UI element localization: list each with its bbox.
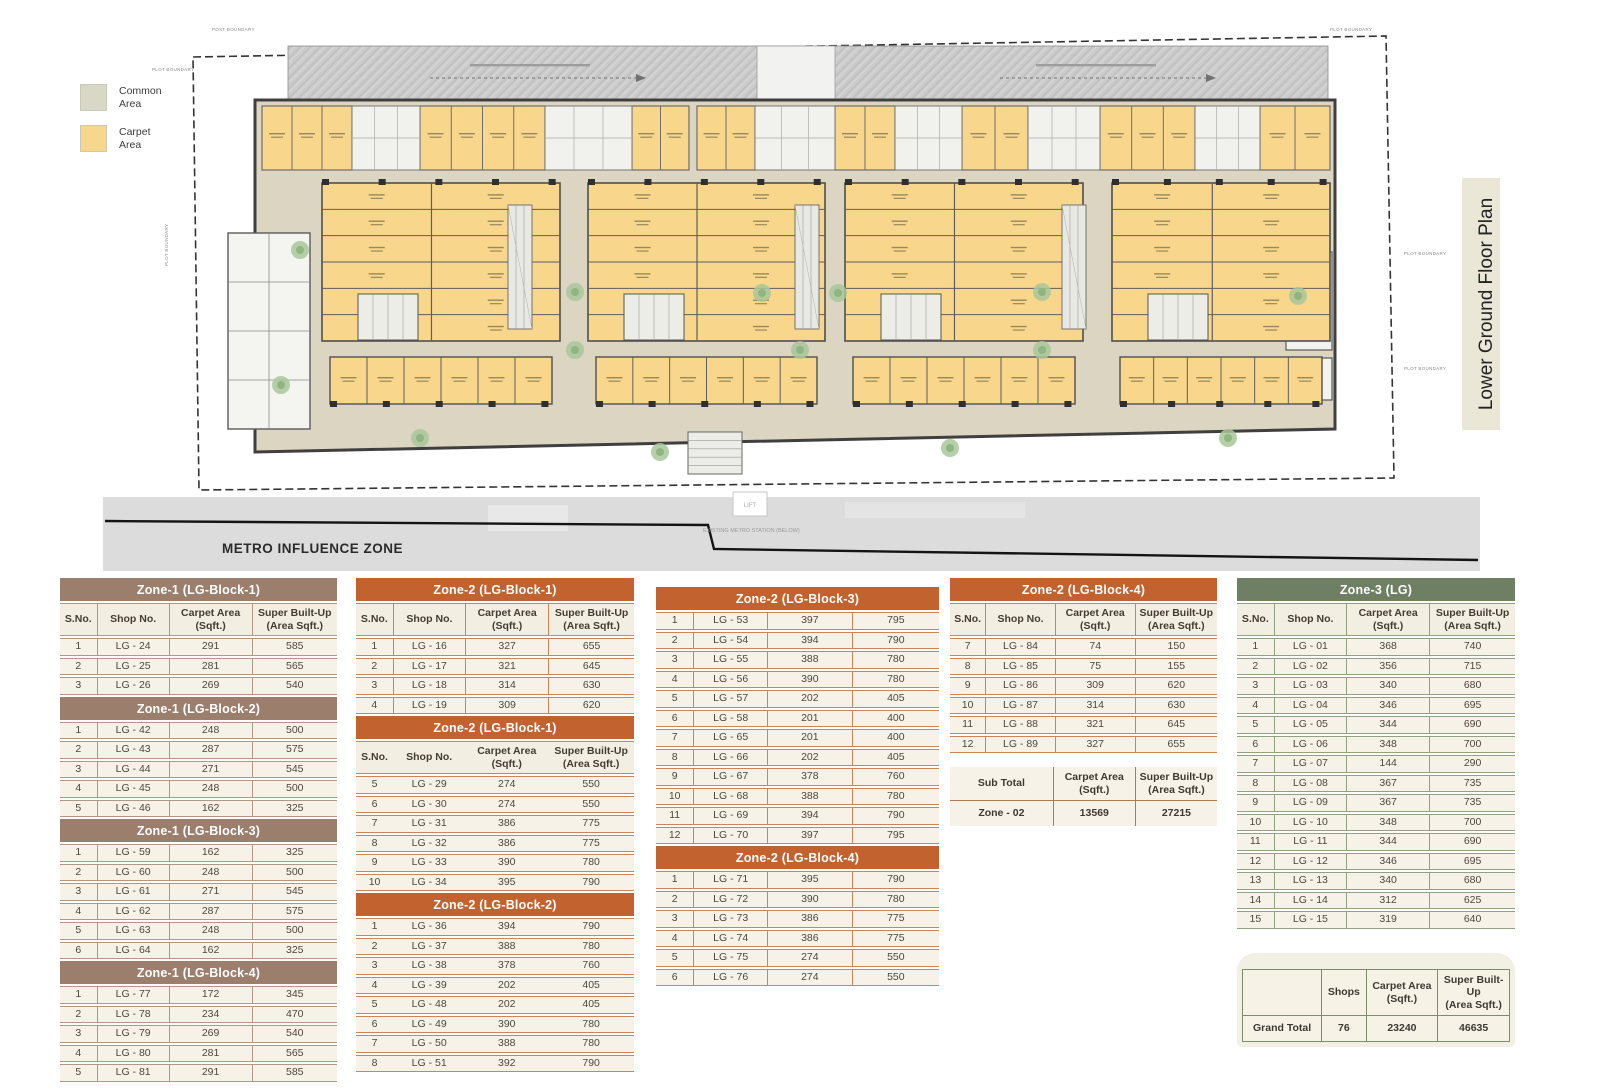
shop-label-mark xyxy=(1129,377,1145,378)
boundary-label: PLOT BOUNDARY xyxy=(1404,366,1446,371)
metro-structure xyxy=(488,505,568,531)
table-cell: 388 xyxy=(767,651,852,669)
table-cell: 327 xyxy=(1055,736,1135,754)
table-cell: 395 xyxy=(465,874,548,892)
wall-tick xyxy=(330,401,337,407)
table-cell: LG - 38 xyxy=(393,957,465,975)
table-cell: 394 xyxy=(767,632,852,650)
table-cell: 5 xyxy=(356,776,393,794)
legend-label: Common Area xyxy=(119,85,162,110)
table-cell: 2 xyxy=(356,658,393,676)
shop-label-mark xyxy=(1173,137,1185,138)
shop-label-mark xyxy=(635,194,651,195)
table-cell: 780 xyxy=(548,1016,634,1034)
table-cell: 2 xyxy=(356,938,393,956)
tree xyxy=(277,381,285,389)
shop-label-mark xyxy=(369,247,385,248)
shop-label-mark xyxy=(1299,381,1311,382)
shop-label-mark xyxy=(791,377,807,378)
table-cell: 348 xyxy=(1346,736,1429,754)
shop-label-mark xyxy=(1263,273,1279,274)
shop-label-mark xyxy=(1265,277,1277,278)
shop-label-mark xyxy=(894,224,906,225)
wall-tick xyxy=(596,401,603,407)
data-table: 1LG - 363947902LG - 373887803LG - 383787… xyxy=(356,916,634,1074)
data-table: S.No.Shop No.Carpet Area (Sqft.)Super Bu… xyxy=(1237,601,1515,931)
table-row: 8LG - 8575155 xyxy=(950,658,1217,676)
table-cell: 397 xyxy=(767,612,852,630)
shop-label-mark xyxy=(1014,381,1026,382)
table-cell: 2 xyxy=(60,741,97,759)
shop-label-mark xyxy=(1011,247,1027,248)
shop-label-mark xyxy=(1154,247,1170,248)
table-row: 2LG - 54394790 xyxy=(656,632,939,650)
shop-label-mark xyxy=(753,273,769,274)
table-cell: 470 xyxy=(252,1006,337,1024)
table-cell: 321 xyxy=(1055,716,1135,734)
table-row: 6LG - 58201400 xyxy=(656,710,939,728)
header-row: S.No.Shop No.Carpet Area (Sqft.)Super Bu… xyxy=(60,603,337,636)
table-cell: 790 xyxy=(852,632,939,650)
table-cell: 386 xyxy=(465,815,548,833)
table-cell: LG - 84 xyxy=(985,638,1055,656)
shop-label-mark xyxy=(635,221,651,222)
shop-label-mark xyxy=(755,303,767,304)
wall-tick xyxy=(853,401,860,407)
table-cell: 234 xyxy=(169,1006,252,1024)
wall-tick xyxy=(754,401,761,407)
shop-label-mark xyxy=(635,247,651,248)
shop-label-mark xyxy=(637,198,649,199)
shop-label-mark xyxy=(1108,133,1124,134)
table-cell: 11 xyxy=(1237,833,1274,851)
metro-stair xyxy=(688,432,742,474)
table-cell: LG - 15 xyxy=(1274,911,1346,929)
table-cell: LG - 50 xyxy=(393,1035,465,1053)
table-cell: LG - 46 xyxy=(97,800,169,818)
table-cell: 269 xyxy=(169,677,252,695)
table-cell: 356 xyxy=(1346,658,1429,676)
shop-label-mark xyxy=(938,377,954,378)
header-row: S.No.Shop No.Carpet Area (Sqft.)Super Bu… xyxy=(356,603,634,636)
table-cell: 690 xyxy=(1429,833,1515,851)
shop-label-mark xyxy=(894,250,906,251)
shop-label-mark xyxy=(1013,224,1025,225)
table-title: Zone-1 (LG-Block-1) xyxy=(60,578,337,601)
table-row: 3LG - 38378760 xyxy=(356,957,634,975)
shop-label-mark xyxy=(1140,133,1156,134)
data-table: 1LG - 422485002LG - 432875753LG - 442715… xyxy=(60,720,337,820)
table-row: 5LG - 05344690 xyxy=(1237,716,1515,734)
column-header: S.No. xyxy=(60,603,97,636)
shop-label-mark xyxy=(343,381,355,382)
table-row: 3LG - 79269540 xyxy=(60,1025,337,1043)
shop-label-mark xyxy=(755,329,767,330)
table-row: 1LG - 59162325 xyxy=(60,844,337,862)
table-row: 9LG - 09367735 xyxy=(1237,794,1515,812)
table-cell: LG - 37 xyxy=(393,938,465,956)
table-cell: LG - 16 xyxy=(393,638,465,656)
tree xyxy=(571,288,579,296)
table-cell: 780 xyxy=(548,1035,634,1053)
shop-label-mark xyxy=(1004,133,1020,134)
column-header: Carpet Area (Sqft.) xyxy=(1055,603,1135,636)
header-row: S.No.Shop No.Carpet Area (Sqft.)Super Bu… xyxy=(950,603,1217,636)
table-cell: 405 xyxy=(548,996,634,1014)
table-cell: LG - 60 xyxy=(97,864,169,882)
shop-label-mark xyxy=(606,377,622,378)
shop-label-mark xyxy=(415,377,431,378)
table-row: 4LG - 56390780 xyxy=(656,671,939,689)
table-row: 6LG - 49390780 xyxy=(356,1016,634,1034)
table-cell: LG - 12 xyxy=(1274,853,1346,871)
table-cell: 630 xyxy=(548,677,634,695)
subtotal-super: 27215 xyxy=(1135,801,1217,826)
table-cell: 740 xyxy=(1429,638,1515,656)
table-cell: 248 xyxy=(169,780,252,798)
table-row: 1LG - 77172345 xyxy=(60,986,337,1004)
shop-label-mark xyxy=(1110,137,1122,138)
shop-label-mark xyxy=(1265,250,1277,251)
shop-label-mark xyxy=(753,326,769,327)
table-cell: LG - 34 xyxy=(393,874,465,892)
table-row: 1LG - 71395790 xyxy=(656,871,939,889)
grand-total-carpet: 23240 xyxy=(1366,1016,1438,1042)
table-cell: 390 xyxy=(465,854,548,872)
wall-tick xyxy=(1112,179,1119,185)
table-row: 14LG - 14312625 xyxy=(1237,892,1515,910)
table-cell: 6 xyxy=(60,942,97,960)
table-cell: 345 xyxy=(252,986,337,1004)
wall-tick xyxy=(541,401,548,407)
table-cell: LG - 13 xyxy=(1274,872,1346,890)
zone3-table-column: Zone-3 (LG)S.No.Shop No.Carpet Area (Sqf… xyxy=(1237,578,1515,1047)
wall-tick xyxy=(902,179,909,185)
wall-tick xyxy=(549,179,556,185)
shop-label-mark xyxy=(1297,377,1313,378)
table-cell: 6 xyxy=(356,796,393,814)
wall-tick xyxy=(958,179,965,185)
table-cell: 790 xyxy=(548,918,634,936)
zone3-table: Zone-3 (LG)S.No.Shop No.Carpet Area (Sqf… xyxy=(1237,578,1515,931)
table-cell: 344 xyxy=(1346,716,1429,734)
table-row: 2LG - 72390780 xyxy=(656,891,939,909)
table-cell: LG - 42 xyxy=(97,722,169,740)
table-row: 7LG - 50388780 xyxy=(356,1035,634,1053)
table-cell: LG - 77 xyxy=(97,986,169,1004)
table-cell: 790 xyxy=(852,807,939,825)
table-cell: 3 xyxy=(60,883,97,901)
shop-label-mark xyxy=(755,250,767,251)
shop-label-mark xyxy=(753,221,769,222)
page-title: Lower Ground Floor Plan xyxy=(1476,198,1497,410)
shop-label-mark xyxy=(490,329,502,330)
table-row: 6LG - 30274550 xyxy=(356,796,634,814)
table-cell: 775 xyxy=(852,930,939,948)
wall-tick xyxy=(489,401,496,407)
table-cell: 10 xyxy=(1237,814,1274,832)
shop-label-mark xyxy=(1011,326,1027,327)
subtotal-label: Sub Total xyxy=(950,767,1053,801)
table-row: 1LG - 42248500 xyxy=(60,722,337,740)
table-cell: LG - 44 xyxy=(97,761,169,779)
zone2-block4-table-b: Zone-2 (LG-Block-4)S.No.Shop No.Carpet A… xyxy=(950,578,1217,755)
shop-label-mark xyxy=(1013,277,1025,278)
shop-label-mark xyxy=(1265,329,1277,330)
shop-label-mark xyxy=(1270,133,1286,134)
table-cell: 269 xyxy=(169,1025,252,1043)
table-cell: 9 xyxy=(356,854,393,872)
zone2-block1-table-b: Zone-2 (LG-Block-1)S.No.Shop No.Carpet A… xyxy=(356,716,634,893)
table-cell: LG - 49 xyxy=(393,1016,465,1034)
table-cell: 645 xyxy=(1135,716,1217,734)
shop-label-mark xyxy=(1013,198,1025,199)
table-cell: 392 xyxy=(465,1055,548,1073)
table-cell: 780 xyxy=(852,651,939,669)
table-cell: 2 xyxy=(656,891,693,909)
tree xyxy=(296,246,304,254)
table-cell: 5 xyxy=(656,690,693,708)
table-cell: 500 xyxy=(252,722,337,740)
grand-total-label: Grand Total xyxy=(1243,1016,1322,1042)
wall-tick xyxy=(436,401,443,407)
table-cell: 6 xyxy=(656,710,693,728)
data-table: S.No.Shop No.Carpet Area (Sqft.)Super Bu… xyxy=(356,601,634,716)
shop-label-mark xyxy=(1265,303,1277,304)
table-cell: 500 xyxy=(252,780,337,798)
table-row: 8LG - 66202405 xyxy=(656,749,939,767)
shop-label-mark xyxy=(1013,329,1025,330)
table-row: 1LG - 01368740 xyxy=(1237,638,1515,656)
wall-tick xyxy=(1268,179,1275,185)
tree xyxy=(416,434,424,442)
data-table: 1LG - 771723452LG - 782344703LG - 792695… xyxy=(60,984,337,1084)
table-cell: LG - 71 xyxy=(693,871,767,889)
table-cell: 790 xyxy=(548,874,634,892)
table-cell: 1 xyxy=(60,844,97,862)
table-cell: 388 xyxy=(767,788,852,806)
table-row: 6LG - 64162325 xyxy=(60,942,337,960)
table-cell: 12 xyxy=(656,827,693,845)
table-cell: 2 xyxy=(60,864,97,882)
column-header: S.No. xyxy=(950,603,985,636)
shop-label-mark xyxy=(490,133,506,134)
table-row: 6LG - 06348700 xyxy=(1237,736,1515,754)
shop-label-mark xyxy=(489,377,505,378)
shop-label-mark xyxy=(1265,224,1277,225)
boundary-label: PLOT BOUNDARY xyxy=(152,67,194,72)
table-row: 5LG - 46162325 xyxy=(60,800,337,818)
table-cell: 15 xyxy=(1237,911,1274,929)
table-cell: 4 xyxy=(60,903,97,921)
table-cell: 75 xyxy=(1055,658,1135,676)
shop-label-mark xyxy=(753,247,769,248)
wall-tick xyxy=(1120,401,1127,407)
table-cell: LG - 58 xyxy=(693,710,767,728)
table-cell: 10 xyxy=(656,788,693,806)
shop-label-mark xyxy=(1156,224,1168,225)
table-row: 7LG - 07144290 xyxy=(1237,755,1515,773)
wall-tick xyxy=(649,401,656,407)
table-cell: 271 xyxy=(169,883,252,901)
table-cell: 201 xyxy=(767,729,852,747)
table-cell: 144 xyxy=(1346,755,1429,773)
table-cell: 735 xyxy=(1429,794,1515,812)
table-row: 9LG - 33390780 xyxy=(356,854,634,872)
shop-label-mark xyxy=(528,381,540,382)
shop-label-mark xyxy=(299,133,315,134)
table-cell: LG - 39 xyxy=(393,977,465,995)
floor-plan: POST BOUNDARY PLOT BOUNDARY PLOT BOUNDAR… xyxy=(0,0,1600,575)
table-cell: LG - 26 xyxy=(97,677,169,695)
table-cell: LG - 10 xyxy=(1274,814,1346,832)
table-cell: LG - 07 xyxy=(1274,755,1346,773)
shop-label-mark xyxy=(490,198,502,199)
shop-label-mark xyxy=(488,273,504,274)
tree xyxy=(1224,434,1232,442)
table-row: 2LG - 37388780 xyxy=(356,938,634,956)
wall-tick xyxy=(1168,401,1175,407)
shop-label-mark xyxy=(331,137,343,138)
table-cell: 4 xyxy=(356,697,393,715)
table-title: Zone-2 (LG-Block-2) xyxy=(356,893,634,916)
shop-label-mark xyxy=(735,137,747,138)
shop-label-mark xyxy=(1156,250,1168,251)
shop-label-mark xyxy=(521,133,537,134)
data-table: S.No.Shop No.Carpet Area (Sqft.)Super Bu… xyxy=(60,601,337,697)
table-cell: 162 xyxy=(169,800,252,818)
table-cell: 287 xyxy=(169,741,252,759)
table-cell: 397 xyxy=(767,827,852,845)
table-cell: LG - 76 xyxy=(693,969,767,987)
table-cell: 540 xyxy=(252,677,337,695)
tree xyxy=(1038,288,1046,296)
shop-label-mark xyxy=(608,381,620,382)
wall-tick xyxy=(959,401,966,407)
table-cell: 386 xyxy=(767,930,852,948)
table-cell: 394 xyxy=(767,807,852,825)
table-cell: 680 xyxy=(1429,677,1515,695)
shop-label-mark xyxy=(682,381,694,382)
metro-zone-label: METRO INFLUENCE ZONE xyxy=(222,541,403,556)
table-cell: 715 xyxy=(1429,658,1515,676)
table-cell: 291 xyxy=(169,638,252,656)
wall-tick xyxy=(1312,401,1319,407)
table-cell: 2 xyxy=(60,1006,97,1024)
table-cell: LG - 81 xyxy=(97,1064,169,1082)
column-header: Carpet Area (Sqft.) xyxy=(465,741,548,774)
data-table: 1LG - 713957902LG - 723907803LG - 733867… xyxy=(656,869,939,988)
wall-tick xyxy=(383,401,390,407)
column-header: Carpet Area (Sqft.) xyxy=(465,603,548,636)
table-cell: 290 xyxy=(1429,755,1515,773)
table-cell: 780 xyxy=(852,788,939,806)
column-header: Shop No. xyxy=(985,603,1055,636)
table-cell: 346 xyxy=(1346,697,1429,715)
table-cell: LG - 05 xyxy=(1274,716,1346,734)
shop-label-mark xyxy=(488,300,504,301)
table-row: 2LG - 78234470 xyxy=(60,1006,337,1024)
shop-label-mark xyxy=(894,198,906,199)
table-cell: 545 xyxy=(252,761,337,779)
header-row: S.No.Shop No.Carpet Area (Sqft.)Super Bu… xyxy=(1237,603,1515,636)
wall-tick xyxy=(1012,401,1019,407)
table-cell: 775 xyxy=(548,835,634,853)
shop-label-mark xyxy=(1307,137,1319,138)
wall-tick xyxy=(814,179,821,185)
table-cell: 281 xyxy=(169,658,252,676)
table-cell: 540 xyxy=(252,1025,337,1043)
table-title: Zone-1 (LG-Block-4) xyxy=(60,961,337,984)
subtotal-header-row: Sub Total Carpet Area (Sqft.) Super Buil… xyxy=(950,767,1217,801)
shop-label-mark xyxy=(1049,377,1065,378)
table-cell: LG - 45 xyxy=(97,780,169,798)
shop-label-mark xyxy=(973,137,985,138)
table-cell: 3 xyxy=(60,677,97,695)
zone2-block2-table: Zone-2 (LG-Block-2)1LG - 363947902LG - 3… xyxy=(356,893,634,1074)
table-row: 10LG - 87314630 xyxy=(950,697,1217,715)
shop-label-mark xyxy=(371,250,383,251)
table-row: 9LG - 67378760 xyxy=(656,768,939,786)
shop-label-mark xyxy=(378,377,394,378)
table-cell: 202 xyxy=(465,996,548,1014)
column-header: Super Built-Up (Area Sqft.) xyxy=(548,603,634,636)
data-table: 1LG - 591623252LG - 602485003LG - 612715… xyxy=(60,842,337,961)
table-cell: 700 xyxy=(1429,736,1515,754)
table-row: 10LG - 10348700 xyxy=(1237,814,1515,832)
shop-label-mark xyxy=(637,250,649,251)
table-cell: 9 xyxy=(950,677,985,695)
wall-tick xyxy=(1015,179,1022,185)
table-cell: LG - 87 xyxy=(985,697,1055,715)
shop-label-mark xyxy=(1263,300,1279,301)
grand-total-panel: Shops Carpet Area (Sqft.) Super Built-Up… xyxy=(1237,953,1515,1047)
table-row: 3LG - 55388780 xyxy=(656,651,939,669)
table-cell: 312 xyxy=(1346,892,1429,910)
small-text-mark xyxy=(470,64,590,66)
table-cell: 5 xyxy=(656,949,693,967)
table-cell: 14 xyxy=(1237,892,1274,910)
table-cell: 8 xyxy=(356,1055,393,1073)
table-row: 5LG - 48202405 xyxy=(356,996,634,1014)
wall-tick xyxy=(322,179,329,185)
table-cell: LG - 80 xyxy=(97,1045,169,1063)
shop-label-mark xyxy=(1142,137,1154,138)
table-cell: 5 xyxy=(356,996,393,1014)
table-cell: 3 xyxy=(356,957,393,975)
tree xyxy=(758,289,766,297)
table-row: 4LG - 19309620 xyxy=(356,697,634,715)
table-cell: 281 xyxy=(169,1045,252,1063)
table-row: 1LG - 53397795 xyxy=(656,612,939,630)
wall-tick xyxy=(1164,179,1171,185)
table-cell: 550 xyxy=(852,969,939,987)
boundary-label: POST BOUNDARY xyxy=(212,27,255,32)
grand-total-super: 46635 xyxy=(1438,1016,1510,1042)
table-cell: LG - 30 xyxy=(393,796,465,814)
table-cell: LG - 74 xyxy=(693,930,767,948)
table-cell: 348 xyxy=(1346,814,1429,832)
table-cell: LG - 79 xyxy=(97,1025,169,1043)
table-title: Zone-3 (LG) xyxy=(1237,578,1515,601)
table-cell: 314 xyxy=(465,677,548,695)
table-title: Zone-2 (LG-Block-4) xyxy=(950,578,1217,601)
brochure-page: POST BOUNDARY PLOT BOUNDARY PLOT BOUNDAR… xyxy=(0,0,1600,1091)
shop-label-mark xyxy=(892,273,908,274)
column-header: Super Built-Up (Area Sqft.) xyxy=(1135,767,1217,801)
table-cell: 780 xyxy=(548,854,634,872)
shop-label-mark xyxy=(1013,250,1025,251)
